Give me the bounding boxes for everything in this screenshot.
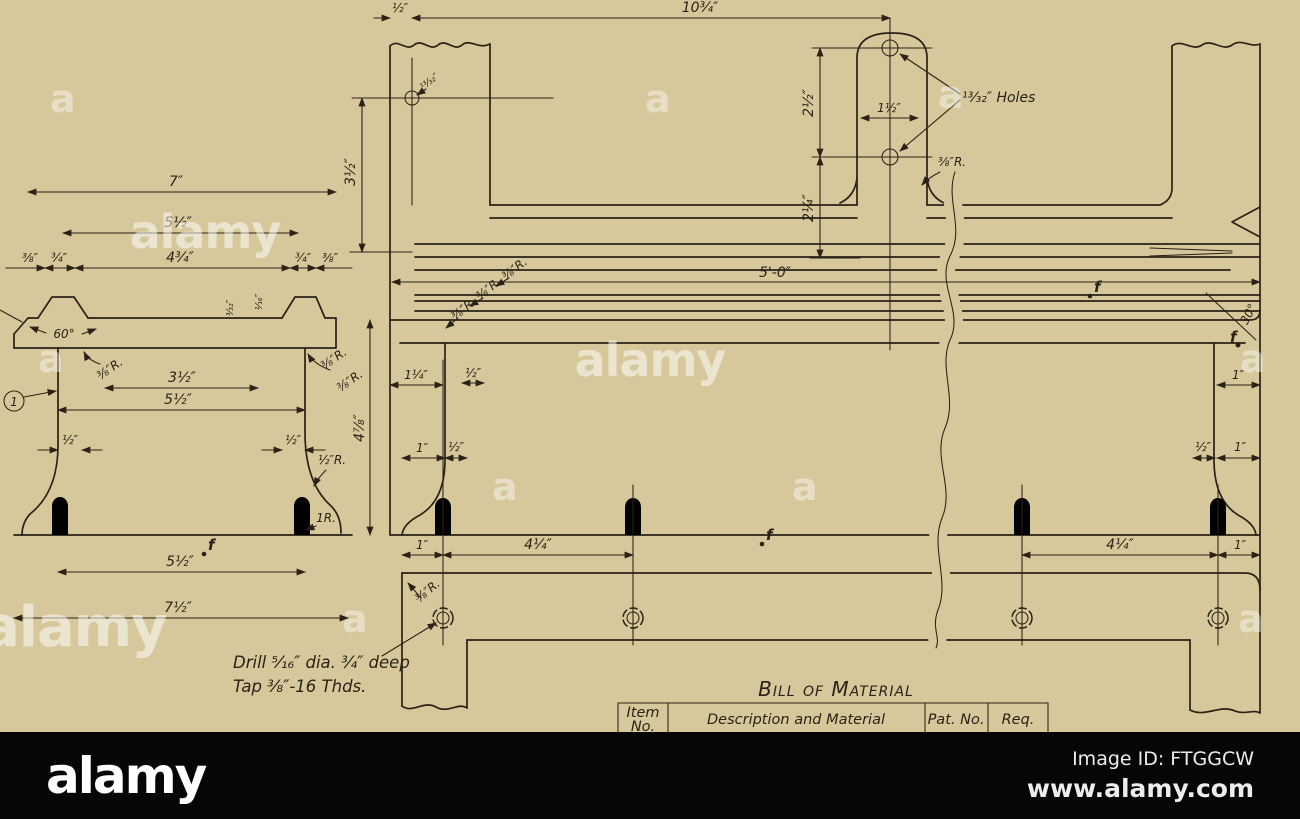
dim-base-centers: 5½″ [166, 554, 194, 570]
alamy-footer-bar: alamy Image ID: FTGGCW www.alamy.com [0, 732, 1300, 819]
dim-edge-right: ⅜″ [322, 251, 339, 265]
dim-web-thk-right: ½″ [285, 433, 302, 447]
lathe-bed-drawing: 7″ 5½″ ⅜″ ¾″ 4¾″ ¾″ ⅜″ 60° ⅜″R. ⅜″R. [0, 0, 1300, 732]
watermark-letter-4: a [38, 337, 64, 381]
dim-base-overall: 7½″ [164, 600, 192, 616]
note-holes: ¹³⁄₃₂″ Holes [962, 90, 1035, 106]
watermark-letter-2: a [645, 77, 671, 121]
angle-end: 30° [1237, 301, 1259, 326]
watermark-letter-6: a [792, 465, 818, 509]
radius-flare: ½″R. [318, 453, 346, 467]
watermark-letter-3: a [938, 73, 964, 117]
hole-size-left: ¹³⁄₃₂″ [418, 71, 441, 92]
technical-drawing: 7″ 5½″ ⅜″ ¾″ 4¾″ ¾″ ⅜″ 60° ⅜″R. ⅜″R. [0, 0, 1300, 732]
watermark-letter-5: a [492, 465, 518, 509]
dim-detail-b: ¹⁄₁₆″ [254, 293, 265, 310]
radius-web-left: ⅜″R. [94, 355, 125, 383]
dim-section-height: 4⅞″ [352, 413, 368, 441]
watermark-word-1: alamy [130, 205, 282, 259]
radius-corner-2: ⅜″R. [473, 275, 504, 303]
image-id: Image ID: FTGGCW [1027, 748, 1254, 770]
dim-hole-height: 3½″ [343, 157, 359, 185]
dim-overall-width: 7″ [169, 174, 184, 190]
elevation-dimensions: ½″ 10¾″ ¹³⁄₃₂″ 2½″ 1½″ ¹³⁄₃₂″ Holes ⅜″R.… [202, 0, 1260, 605]
dim-bracket-width: 1½″ [877, 101, 901, 115]
watermark-letter-1: a [50, 77, 76, 121]
dim-way-left: ¾″ [51, 251, 68, 265]
dim-end-offset: ½″ [392, 1, 409, 15]
dim-foot-hole-right: 1″ [1234, 538, 1247, 552]
alamy-logo: alamy [46, 751, 205, 801]
watermark-letter-8: a [1238, 597, 1264, 641]
watermark-word-3: alamy [0, 595, 167, 660]
dim-foot-left: 1″ [416, 441, 429, 455]
dim-web-thk: ½″ [448, 440, 465, 454]
dim-length: 5'-0″ [759, 265, 792, 281]
dim-web-inner: 3½″ [168, 370, 196, 386]
bom-header-pat-no: Pat. No. [928, 712, 985, 728]
drill-note-line2: Tap ⅜″-16 Thds. [233, 677, 366, 696]
dim-bracket-holes: 2½″ [801, 88, 817, 116]
radius-web-right: ⅜″R. [318, 345, 349, 373]
dim-web-thk-top: ½″ [465, 366, 482, 380]
watermark-letter-7: a [1240, 337, 1266, 381]
radius-web-right2: ⅜″R. [334, 367, 365, 395]
bom-header-description: Description and Material [707, 712, 885, 728]
watermark-word-2: alamy [575, 333, 727, 387]
elevation-outline [352, 18, 1260, 713]
radius-corner-1: ⅜″R. [448, 295, 479, 323]
dim-web-offset: 1¼″ [404, 368, 428, 382]
dim-hole-spacing-right: 4¼″ [1106, 537, 1134, 553]
balloon-item-number: 1 [10, 395, 18, 409]
dim-right-web: 1″ [1234, 440, 1247, 454]
radius-corner-3: ⅜″R. [499, 255, 530, 283]
radius-base: 1R. [316, 511, 336, 525]
dim-edge-left: ⅜″ [22, 251, 39, 265]
dim-way-right: ¾″ [295, 251, 312, 265]
dim-right-web-thk: ½″ [1195, 440, 1212, 454]
radius-foot: ⅜″R. [412, 576, 443, 605]
radius-bracket: ⅜″R. [938, 155, 966, 169]
bom-title: Bill of Material [758, 677, 914, 701]
drill-note: Drill ⁵⁄₁₆″ dia. ¾″ deep Tap ⅜″-16 Thds. [233, 623, 436, 696]
dim-detail-a: ³⁄₃₂″ [225, 299, 236, 316]
bill-of-material: Bill of Material Item No. Description an… [618, 677, 1048, 732]
stock-photo-page: 7″ 5½″ ⅜″ ¾″ 4¾″ ¾″ ⅜″ 60° ⅜″R. ⅜″R. [0, 0, 1300, 819]
dim-hole-spacing-left: 4¼″ [524, 537, 552, 553]
bom-header-item-line2: No. [631, 719, 655, 732]
finish-mark-rail: f [1094, 278, 1103, 296]
dim-bracket-base: 2¼″ [801, 193, 817, 221]
dim-web-thk-left: ½″ [62, 433, 79, 447]
dim-web-outer: 5½″ [164, 392, 192, 408]
finish-mark-section: f [208, 536, 217, 554]
image-meta: Image ID: FTGGCW www.alamy.com [1027, 748, 1254, 803]
watermark-letter-9: a [342, 597, 368, 641]
dim-foot-hole: 1″ [416, 538, 429, 552]
dim-hole-span: 10¾″ [682, 0, 719, 16]
alamy-url: www.alamy.com [1027, 774, 1254, 803]
bom-header-req: Req. [1002, 712, 1035, 728]
